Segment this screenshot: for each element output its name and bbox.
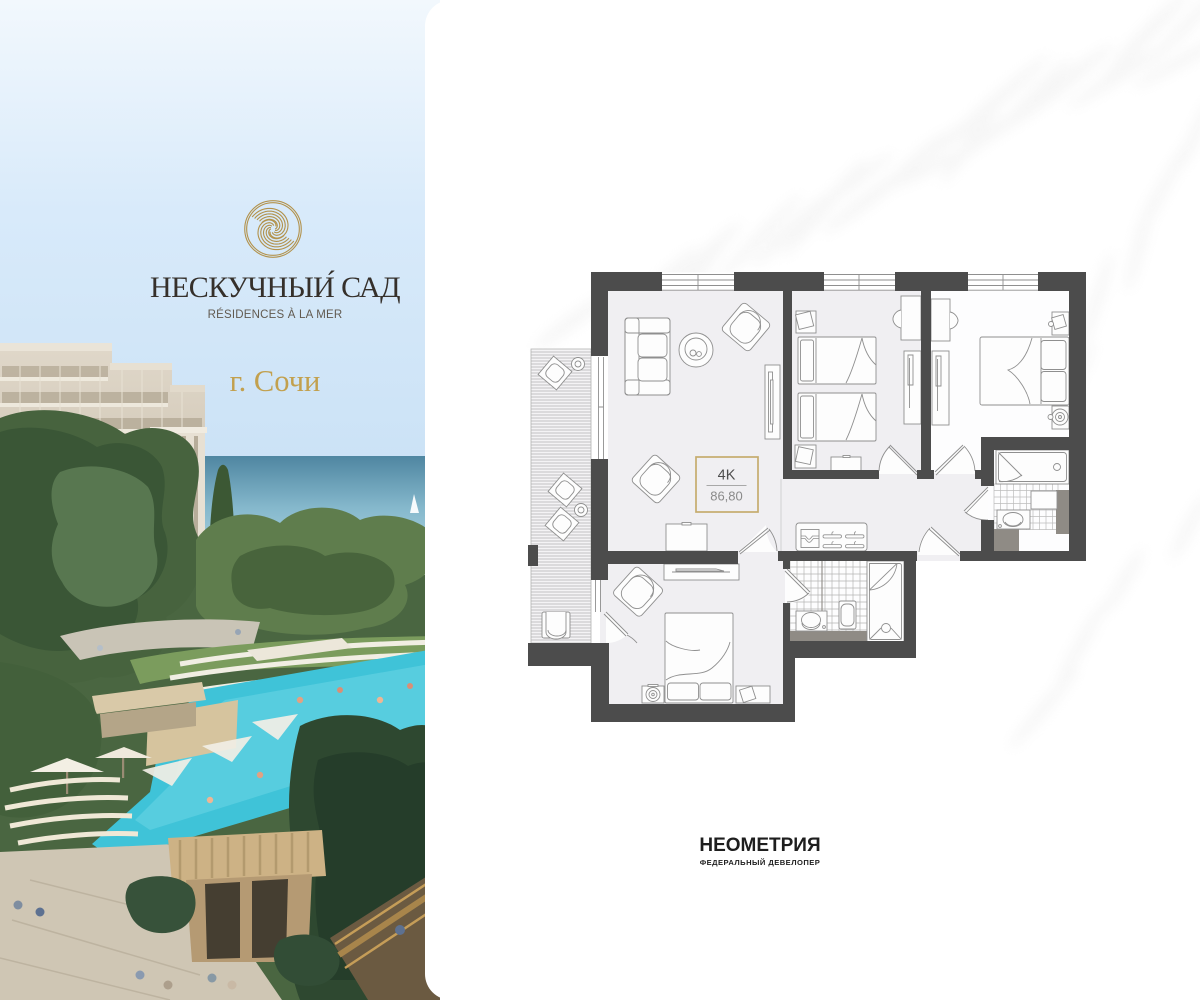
svg-text:4K: 4K: [718, 468, 736, 484]
svg-text:86,80: 86,80: [710, 489, 743, 504]
